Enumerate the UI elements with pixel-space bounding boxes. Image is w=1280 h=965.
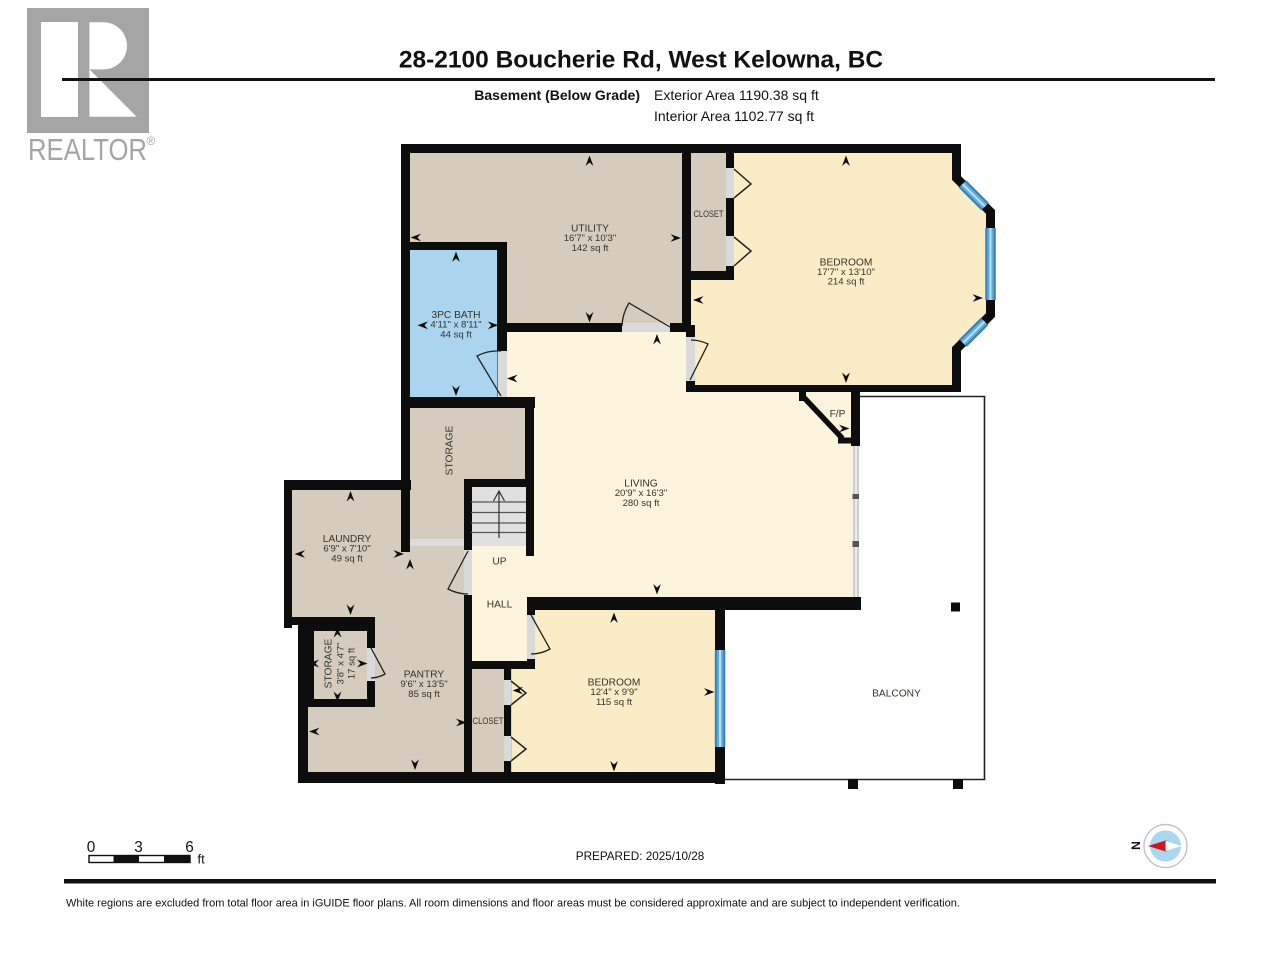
svg-text:N: N [1129, 841, 1143, 850]
svg-text:Interior Area 1102.77 sq ft: Interior Area 1102.77 sq ft [654, 108, 814, 124]
svg-text:28-2100 Boucherie Rd, West Kel: 28-2100 Boucherie Rd, West Kelowna, BC [399, 47, 884, 74]
svg-text:49 sq ft: 49 sq ft [331, 553, 363, 564]
svg-text:44 sq ft: 44 sq ft [440, 329, 472, 340]
svg-text:BALCONY: BALCONY [872, 689, 921, 700]
svg-text:142 sq ft: 142 sq ft [572, 243, 609, 254]
svg-text:STORAGE: STORAGE [324, 638, 335, 688]
svg-text:3'8" x 4'7": 3'8" x 4'7" [336, 643, 347, 685]
svg-text:ft: ft [198, 852, 206, 867]
svg-text:3: 3 [134, 839, 143, 856]
svg-text:F/P: F/P [830, 409, 846, 420]
svg-text:PREPARED: 2025/10/28: PREPARED: 2025/10/28 [576, 850, 704, 863]
svg-text:6: 6 [185, 839, 194, 856]
svg-text:85 sq ft: 85 sq ft [408, 689, 440, 700]
svg-text:0: 0 [87, 839, 96, 856]
svg-text:STORAGE: STORAGE [445, 425, 456, 475]
svg-text:280 sq ft: 280 sq ft [623, 498, 660, 509]
svg-text:CLOSET: CLOSET [473, 716, 504, 726]
svg-text:®: ® [147, 134, 156, 148]
svg-text:Basement (Below Grade): Basement (Below Grade) [474, 87, 640, 103]
svg-text:White regions are excluded fro: White regions are excluded from total fl… [66, 898, 960, 910]
svg-text:REALTOR: REALTOR [28, 133, 147, 167]
svg-text:HALL: HALL [487, 600, 513, 611]
svg-text:Exterior Area 1190.38 sq ft: Exterior Area 1190.38 sq ft [654, 87, 819, 103]
svg-text:CLOSET: CLOSET [694, 209, 724, 219]
svg-text:UP: UP [492, 557, 506, 568]
svg-text:17 sq ft: 17 sq ft [347, 647, 358, 679]
svg-text:115 sq ft: 115 sq ft [596, 697, 632, 708]
svg-text:214 sq ft: 214 sq ft [828, 277, 865, 288]
